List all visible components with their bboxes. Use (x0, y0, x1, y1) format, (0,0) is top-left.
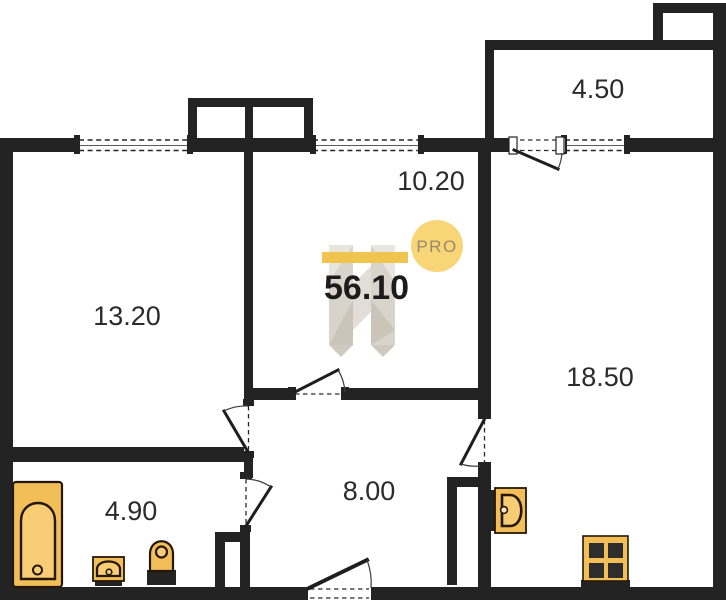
total-area-label: 56.10 (324, 269, 409, 307)
room-label-hallway: 8.00 (343, 476, 396, 506)
room-label-left: 13.20 (93, 301, 161, 331)
door-bathroom (240, 472, 271, 532)
window-room-middle (310, 135, 424, 154)
wash-sink-icon (93, 557, 124, 586)
room-label-middle: 10.20 (397, 166, 465, 196)
wall-a-upper (244, 152, 253, 405)
wall-bottom-left (0, 587, 308, 600)
wall-c-right (345, 388, 491, 400)
window-jamb (187, 135, 193, 154)
wall-c-left (252, 388, 293, 400)
door-arc (558, 153, 562, 169)
door-entrance (308, 560, 371, 600)
duct-left-top (215, 532, 250, 542)
shaft-right-top (447, 477, 478, 487)
wall-bathroom-top (13, 447, 252, 462)
door-arc (367, 560, 371, 588)
wall-loggia-left (485, 40, 494, 152)
window-jamb (624, 135, 630, 154)
door-room-middle (288, 370, 349, 400)
wall-top-seg (419, 138, 510, 152)
wall-balcony-top (188, 98, 313, 107)
wall-left-exterior (0, 138, 13, 600)
room-label-bathroom: 4.90 (105, 496, 158, 526)
wall-top-seg (188, 138, 313, 152)
window-jamb (310, 135, 316, 154)
window-loggia (561, 135, 630, 154)
logo-facet (329, 345, 353, 357)
window-jamb (74, 135, 80, 154)
door-jamb (243, 399, 254, 406)
wall-right-exterior (713, 3, 726, 600)
room-label-right: 18.50 (566, 362, 634, 392)
wall-top-seg (628, 138, 726, 152)
shaft-right-wall (447, 477, 457, 585)
floor-plan: PRO (0, 0, 726, 600)
stove-icon (581, 536, 630, 590)
toilet-icon (147, 541, 176, 585)
door-leaf (514, 150, 558, 169)
door-jamb (556, 137, 564, 154)
wall-d-upper (478, 152, 491, 418)
wall-loggia-top (485, 40, 713, 50)
logo-facet (371, 345, 395, 357)
door-jamb (478, 411, 491, 419)
wall-bottom-right (371, 587, 726, 600)
kitchen-sink-icon (488, 488, 526, 533)
bathtub-icon (13, 482, 62, 587)
window-jamb (418, 135, 424, 154)
logo-bar (322, 252, 408, 263)
door-room-right (461, 411, 491, 470)
door-arc (461, 464, 480, 466)
wall-roofbox-left (653, 3, 663, 43)
door-jamb (240, 472, 252, 479)
door-loggia (509, 137, 565, 169)
window-room-left (74, 135, 193, 154)
wall-balcony-divider (245, 107, 253, 138)
floor-plan-drawing: PRO (0, 0, 726, 600)
room-label-loggia: 4.50 (572, 74, 625, 104)
door-leaf (309, 560, 367, 588)
wall-top-seg (0, 138, 79, 152)
pro-badge-label: PRO (416, 237, 457, 256)
wall-roofbox-top (653, 3, 726, 13)
